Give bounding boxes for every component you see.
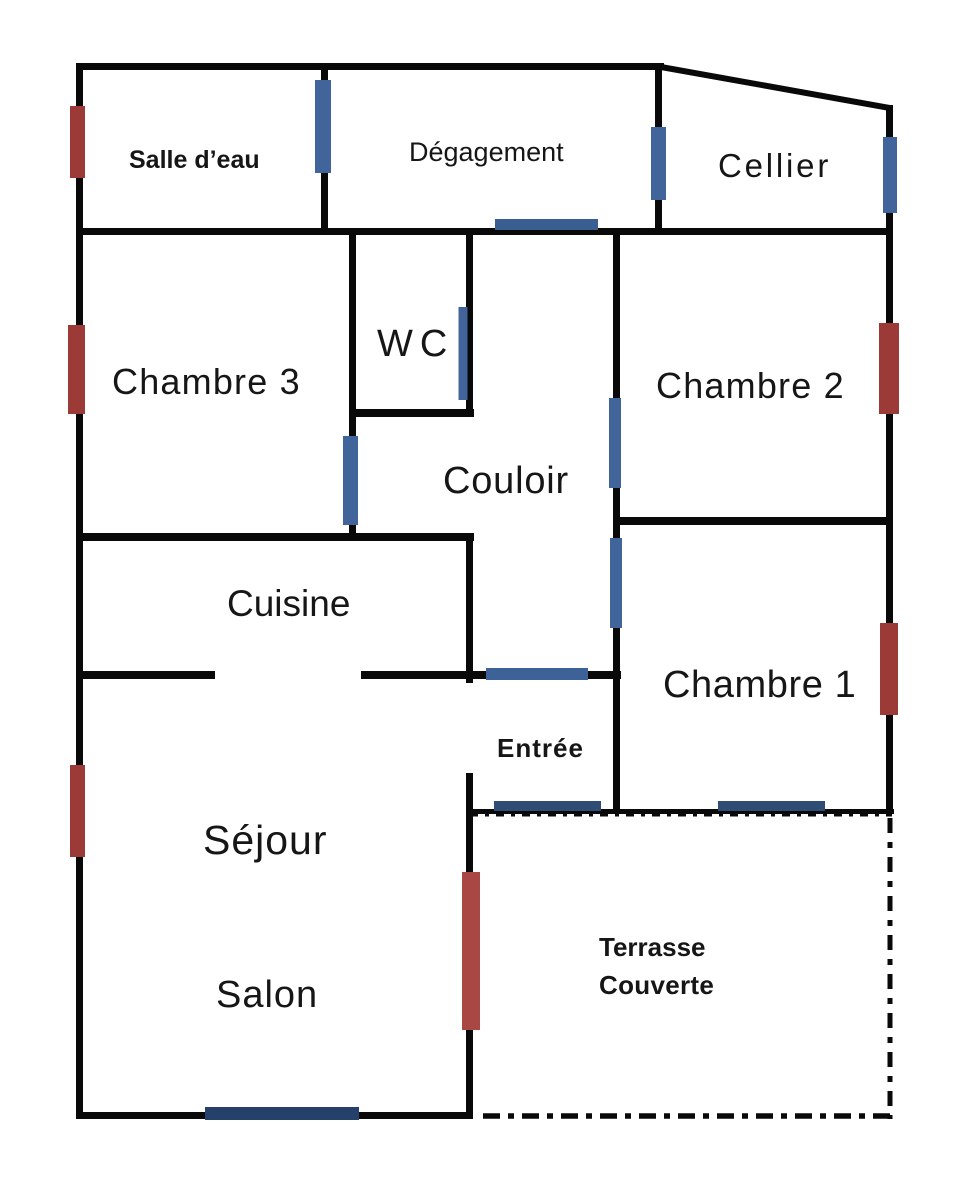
svg-text:Chambre 1: Chambre 1 (663, 664, 856, 706)
svg-text:Terrasse: Terrasse (599, 932, 706, 962)
svg-text:Entrée: Entrée (497, 733, 584, 763)
svg-text:Cellier: Cellier (718, 147, 831, 184)
svg-text:Séjour: Séjour (203, 817, 328, 863)
svg-text:Salon: Salon (216, 974, 318, 1016)
svg-text:WC: WC (377, 323, 454, 365)
svg-text:Salle d’eau: Salle d’eau (129, 146, 260, 174)
svg-text:Couverte: Couverte (599, 970, 714, 1000)
svg-text:Cuisine: Cuisine (227, 583, 350, 624)
svg-text:Dégagement: Dégagement (409, 137, 564, 167)
svg-text:Chambre 2: Chambre 2 (656, 365, 845, 406)
svg-text:Chambre 3: Chambre 3 (112, 361, 301, 402)
svg-text:Couloir: Couloir (443, 460, 569, 502)
